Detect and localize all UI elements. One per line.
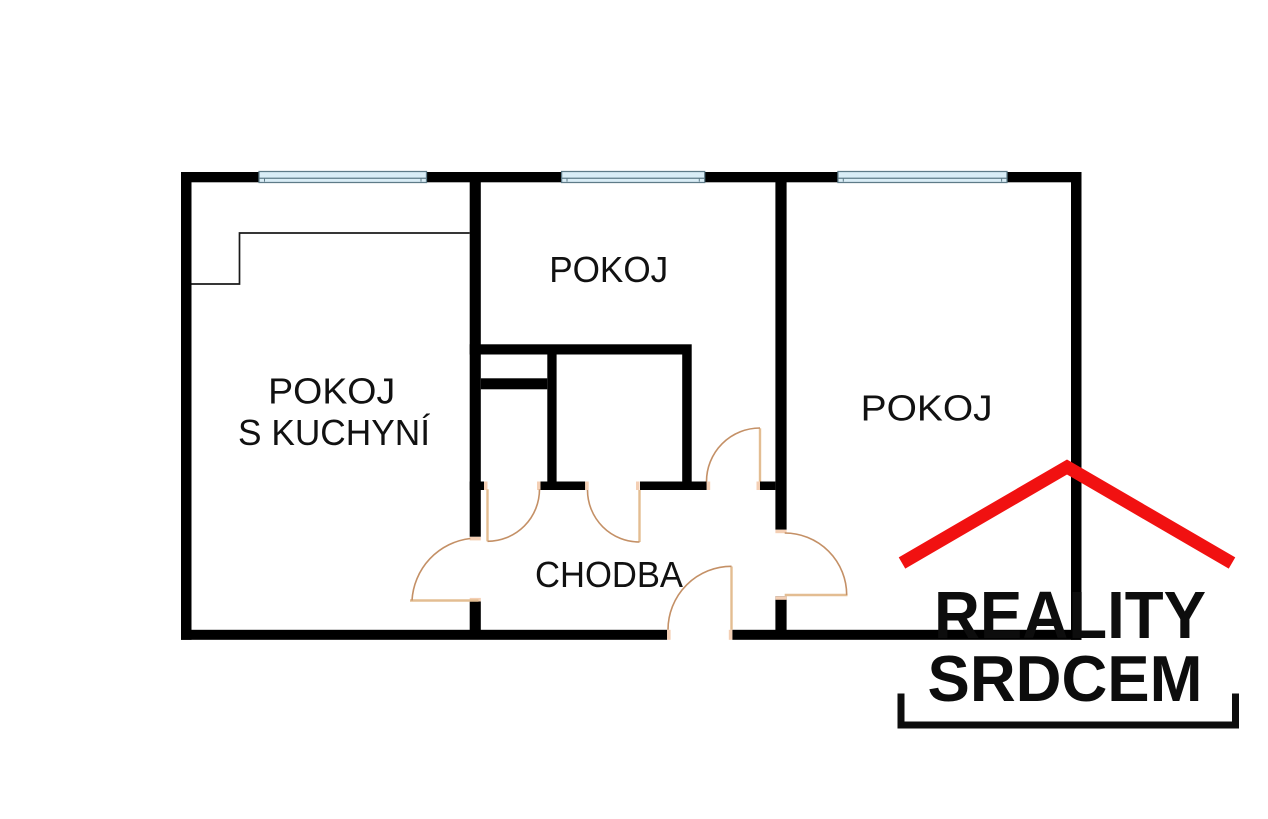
svg-text:S KUCHYNÍ: S KUCHYNÍ: [238, 412, 430, 453]
svg-text:POKOJ: POKOJ: [861, 388, 993, 429]
svg-text:POKOJ: POKOJ: [549, 249, 668, 290]
svg-text:POKOJ: POKOJ: [268, 371, 395, 412]
svg-text:CHODBA: CHODBA: [535, 554, 683, 595]
svg-text:SRDCEM: SRDCEM: [928, 642, 1203, 715]
